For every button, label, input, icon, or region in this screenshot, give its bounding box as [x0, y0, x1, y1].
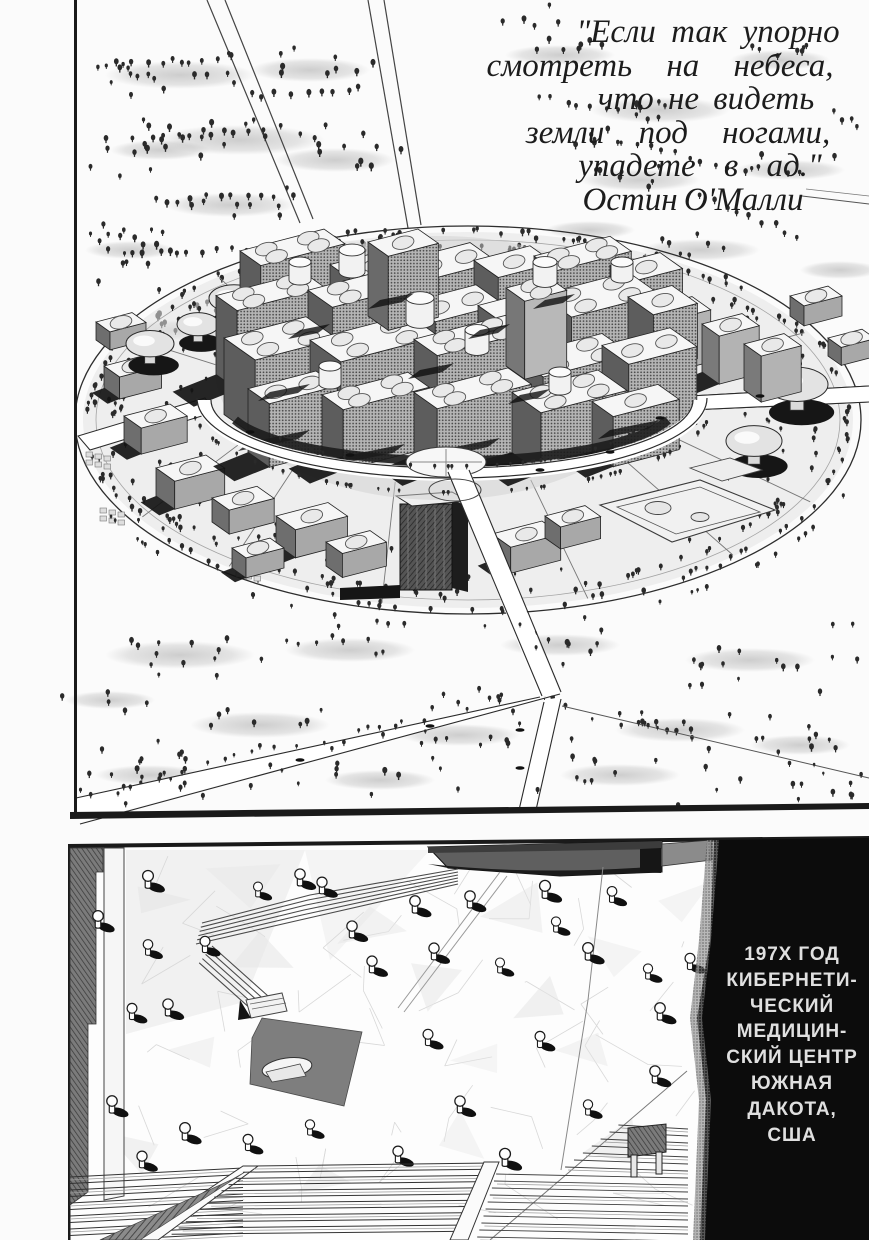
- svg-text:упадете в ад.": упадете в ад.": [575, 148, 822, 184]
- svg-text:СКИЙ ЦЕНТР: СКИЙ ЦЕНТР: [726, 1046, 857, 1068]
- svg-text:ЧЕСКИЙ: ЧЕСКИЙ: [750, 995, 834, 1017]
- svg-text:земли под ногами,: земли под ногами,: [525, 115, 830, 151]
- svg-text:что не видеть: что не видеть: [598, 81, 815, 117]
- svg-text:ЮЖНАЯ: ЮЖНАЯ: [751, 1073, 833, 1094]
- svg-text:смотреть на небеса,: смотреть на небеса,: [487, 48, 834, 84]
- svg-text:Остин О'Малли: Остин О'Малли: [582, 182, 803, 218]
- svg-text:МЕДИЦИН-: МЕДИЦИН-: [737, 1021, 847, 1042]
- svg-text:197X ГОД: 197X ГОД: [744, 944, 839, 965]
- svg-text:КИБЕРНЕТИ-: КИБЕРНЕТИ-: [726, 970, 857, 991]
- svg-text:ДАКОТА,: ДАКОТА,: [747, 1099, 836, 1120]
- svg-text:США: США: [767, 1125, 816, 1146]
- svg-text:"Если так упорно: "Если так упорно: [576, 14, 839, 50]
